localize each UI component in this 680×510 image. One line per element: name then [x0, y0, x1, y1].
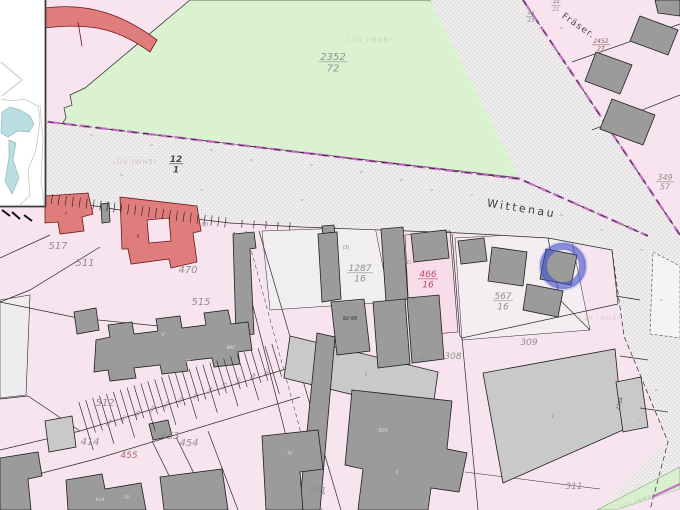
building-label: I: [552, 413, 554, 420]
parcel-label: 512: [95, 398, 114, 409]
fraction-numerator: 44: [528, 11, 535, 17]
fraction-numerator: 2352: [320, 52, 345, 63]
fraction-numerator: 2452: [593, 38, 608, 45]
parcel: [0, 295, 30, 398]
fraction-numerator: 44: [553, 0, 560, 6]
fraction-denominator: 27: [597, 46, 605, 53]
building: [331, 299, 370, 355]
building: [373, 299, 410, 368]
fraction-denominator: 72: [327, 64, 340, 75]
watermark-label: LÜV (WNB): [113, 157, 157, 166]
building-label: IV: [125, 495, 130, 501]
parcel-label: 453: [160, 431, 179, 442]
building-label: 92-96: [343, 316, 358, 322]
overview-map-panel[interactable]: [0, 0, 46, 207]
parcel-label: 454: [179, 438, 198, 449]
fraction-denominator: 16: [354, 275, 366, 285]
building: [407, 295, 444, 363]
building-label: 61A: [96, 497, 105, 503]
building: [411, 230, 449, 262]
building-label: V: [161, 332, 165, 338]
parcel-label: 455: [120, 451, 137, 461]
fraction-numerator: 349: [657, 173, 672, 182]
building: [45, 416, 76, 452]
building: [488, 247, 527, 286]
annotation-label: (1): [404, 260, 411, 266]
map-viewport[interactable]: WittenauFräser.5175114705155124144534544…: [0, 0, 680, 510]
building-label: 66C: [227, 345, 237, 351]
parcel-label: 511: [75, 258, 94, 269]
annotation-label: (3): [342, 245, 349, 251]
building-label: 66B: [99, 332, 108, 338]
traffic-island: [650, 252, 680, 338]
fraction-denominator: 23: [528, 18, 535, 24]
parcel-label: 470: [178, 265, 197, 276]
annotation-label: (4): [418, 355, 425, 361]
map-canvas[interactable]: WittenauFräser.5175114705155124144534544…: [0, 0, 680, 510]
building-label: I: [365, 371, 367, 378]
watermark-label: LÜV (WNB): [348, 35, 392, 44]
building: [74, 308, 99, 334]
parcel-label: 309: [520, 338, 537, 348]
building: [318, 232, 341, 302]
parcel-label: 414: [80, 437, 99, 448]
building-label: VI: [186, 359, 191, 365]
building-label: IV: [288, 451, 293, 457]
parcel-label: 308: [444, 352, 461, 362]
building: [101, 203, 110, 223]
building-label: II: [137, 234, 140, 240]
building-label: 90A: [378, 428, 388, 434]
parcel-label: 517: [48, 241, 68, 252]
fraction-denominator: 21: [553, 7, 560, 13]
parcel-label: 311: [565, 482, 582, 492]
building-label: II: [396, 470, 399, 476]
parcel-label: 515: [191, 297, 210, 308]
fraction-denominator: 16: [497, 303, 509, 313]
parcel-label: 451: [307, 486, 326, 497]
fraction-denominator: 16: [422, 281, 434, 291]
building: [458, 238, 487, 264]
watermark-label: LÜV (WNB): [579, 315, 621, 322]
annotation-label: (7): [408, 298, 415, 304]
annotation-label: (2): [201, 222, 208, 228]
fraction-denominator: 1: [173, 166, 179, 176]
fraction-denominator: 57: [660, 183, 671, 192]
